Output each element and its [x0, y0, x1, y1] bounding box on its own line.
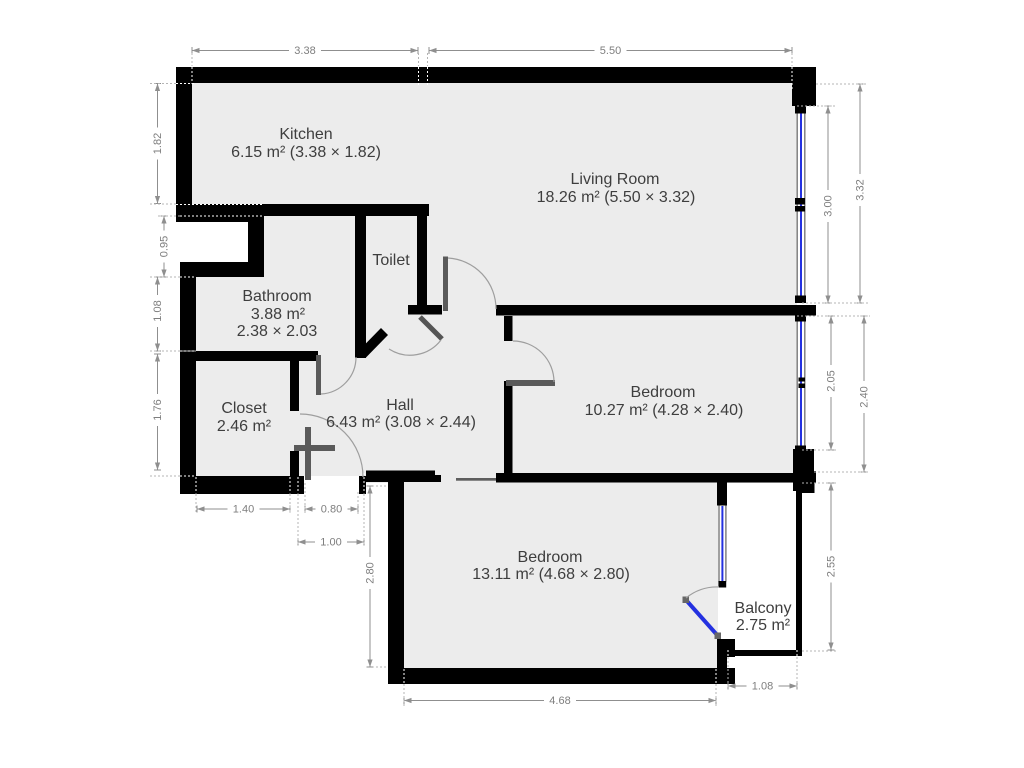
svg-text:1.08: 1.08 — [152, 300, 164, 321]
svg-text:Bedroom: Bedroom — [631, 384, 696, 401]
svg-text:Hall: Hall — [386, 397, 414, 414]
svg-text:1.82: 1.82 — [152, 133, 164, 154]
svg-text:0.80: 0.80 — [321, 504, 342, 516]
svg-text:1.08: 1.08 — [752, 681, 773, 693]
svg-text:3.88 m²: 3.88 m² — [251, 306, 306, 323]
svg-text:1.40: 1.40 — [233, 504, 254, 516]
svg-text:2.40: 2.40 — [859, 386, 871, 407]
svg-text:2.38 × 2.03: 2.38 × 2.03 — [237, 323, 318, 340]
svg-text:3.32: 3.32 — [855, 179, 867, 200]
svg-text:6.15 m² (3.38 × 1.82): 6.15 m² (3.38 × 1.82) — [231, 144, 381, 161]
svg-text:4.68: 4.68 — [549, 695, 570, 707]
svg-text:2.55: 2.55 — [826, 556, 838, 577]
svg-text:Kitchen: Kitchen — [279, 126, 332, 143]
svg-text:13.11 m² (4.68 × 2.80): 13.11 m² (4.68 × 2.80) — [472, 566, 630, 583]
svg-text:3.38: 3.38 — [294, 45, 315, 57]
svg-text:2.75 m²: 2.75 m² — [736, 617, 791, 634]
svg-text:5.50: 5.50 — [600, 45, 621, 57]
svg-text:2.80: 2.80 — [365, 562, 377, 583]
svg-text:Toilet: Toilet — [372, 252, 410, 269]
svg-text:10.27 m² (4.28 × 2.40): 10.27 m² (4.28 × 2.40) — [585, 402, 744, 419]
svg-text:2.05: 2.05 — [826, 370, 838, 391]
svg-text:1.76: 1.76 — [152, 399, 164, 420]
svg-text:Living Room: Living Room — [571, 171, 660, 188]
svg-text:2.46 m²: 2.46 m² — [217, 418, 272, 435]
svg-text:18.26 m² (5.50 × 3.32): 18.26 m² (5.50 × 3.32) — [537, 189, 696, 206]
svg-text:6.43 m² (3.08 × 2.44): 6.43 m² (3.08 × 2.44) — [326, 414, 476, 431]
svg-text:1.00: 1.00 — [320, 537, 341, 549]
svg-text:Bedroom: Bedroom — [518, 549, 583, 566]
svg-text:Closet: Closet — [221, 400, 267, 417]
svg-text:3.00: 3.00 — [823, 195, 835, 216]
svg-text:Bathroom: Bathroom — [242, 288, 311, 305]
svg-text:Balcony: Balcony — [735, 600, 792, 617]
svg-text:0.95: 0.95 — [159, 236, 171, 257]
